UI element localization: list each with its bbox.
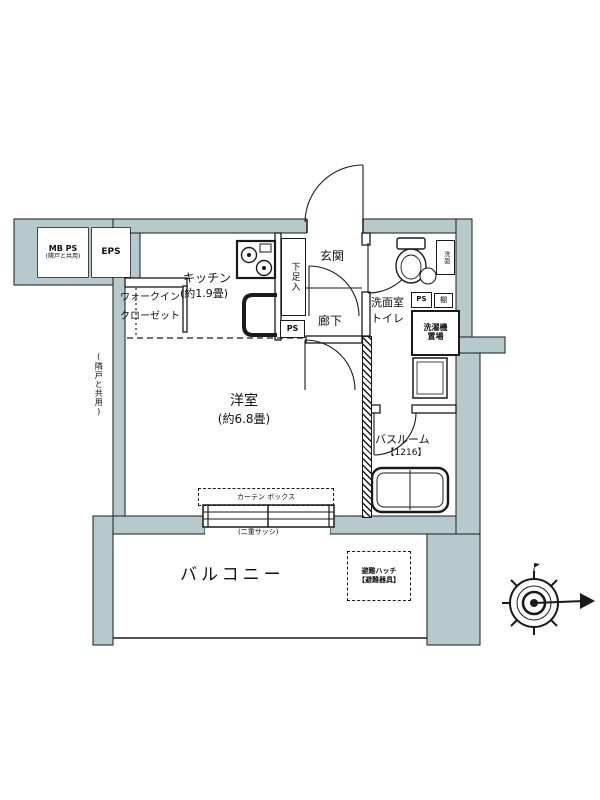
basin-box: 洗面 bbox=[436, 240, 455, 275]
vanity-counter bbox=[413, 358, 447, 398]
curtain-box-label: カーテン ボックス bbox=[237, 493, 295, 502]
living-room-label: 洋室 bbox=[199, 393, 289, 409]
washroom-label-1: 洗面室 bbox=[371, 297, 404, 310]
eps-label: EPS bbox=[101, 248, 120, 258]
floor-plan-drawing bbox=[0, 0, 600, 800]
basin-label: 洗面 bbox=[442, 251, 449, 265]
eps-box: EPS bbox=[92, 228, 130, 277]
hallway-label: 廊下 bbox=[318, 315, 342, 329]
living-room-size-label: (約6.8畳) bbox=[199, 413, 289, 427]
balcony-label: バルコニー bbox=[180, 566, 285, 586]
mb-ps-box: MB PS (隣戸と共用) bbox=[38, 228, 88, 277]
front-door-opening bbox=[307, 218, 363, 234]
ps-box-washroom: PS bbox=[411, 292, 432, 308]
wic-label-1: ウォークイン bbox=[120, 292, 180, 304]
compass-icon bbox=[502, 563, 595, 635]
hatched-wall bbox=[362, 336, 372, 518]
escape-hatch-label-1: 避難ハッチ bbox=[362, 567, 397, 576]
stove-icon bbox=[237, 241, 275, 278]
side-wall-note: (隣戸と共用) bbox=[94, 352, 103, 448]
washroom-label-2: トイレ bbox=[371, 313, 404, 326]
washer-space-box: 洗濯機 置場 bbox=[411, 310, 460, 356]
front-door-arc bbox=[305, 165, 363, 222]
washer-label-2: 置場 bbox=[428, 333, 444, 342]
floor-plan: MB PS (隣戸と共用) EPS 下足入 PS PS 棚 洗濯機 置場 洗面 … bbox=[0, 0, 600, 800]
shoe-cabinet-label: 下足入 bbox=[289, 262, 299, 292]
shelf-box: 棚 bbox=[434, 293, 453, 308]
bathroom-label: バスルーム bbox=[375, 434, 430, 447]
wic-label-2: クローゼット bbox=[120, 311, 180, 323]
genkan-label: 玄関 bbox=[320, 250, 344, 264]
room-door-arc bbox=[305, 340, 355, 390]
double-sash-label: (二重サッシ) bbox=[238, 528, 278, 536]
curtain-box: カーテン ボックス bbox=[198, 488, 334, 506]
bathtub-icon bbox=[372, 468, 448, 512]
escape-hatch-box: 避難ハッチ 【避難器具】 bbox=[347, 551, 411, 601]
ps-shoe-label: PS bbox=[287, 325, 299, 334]
bathroom-size-label: 【1216】 bbox=[375, 448, 437, 458]
kitchen-label: キッチン bbox=[183, 272, 231, 286]
genkan-door-arc bbox=[309, 266, 359, 316]
shoe-cabinet-box: 下足入 bbox=[281, 238, 306, 316]
sink-icon bbox=[244, 295, 277, 335]
corner-basin-icon bbox=[420, 268, 436, 284]
ps-wash-label: PS bbox=[416, 296, 426, 304]
ps-box-shoe: PS bbox=[280, 320, 305, 338]
mb-ps-note: (隣戸と共用) bbox=[46, 254, 81, 261]
kitchen-size-label: (約1.9畳) bbox=[180, 288, 228, 301]
escape-hatch-label-2: 【避難器具】 bbox=[358, 576, 400, 585]
shelf-label: 棚 bbox=[440, 297, 447, 305]
